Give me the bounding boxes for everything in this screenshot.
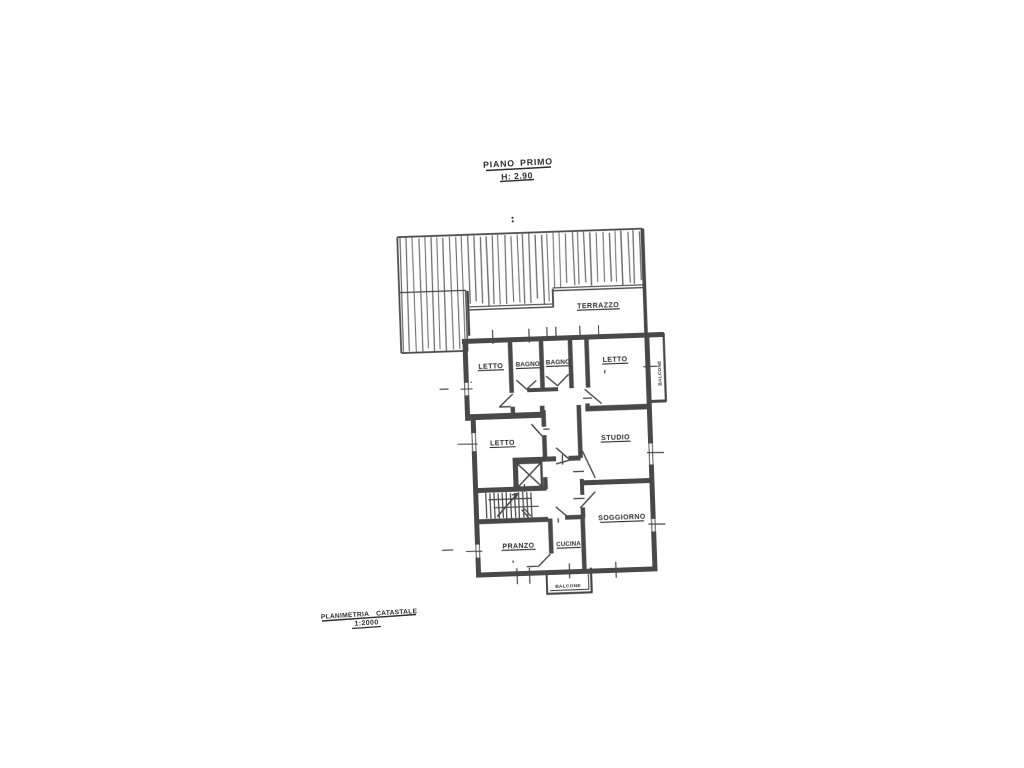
svg-text:BALCONE: BALCONE [555, 583, 581, 590]
svg-text:BALCONE: BALCONE [656, 360, 663, 386]
